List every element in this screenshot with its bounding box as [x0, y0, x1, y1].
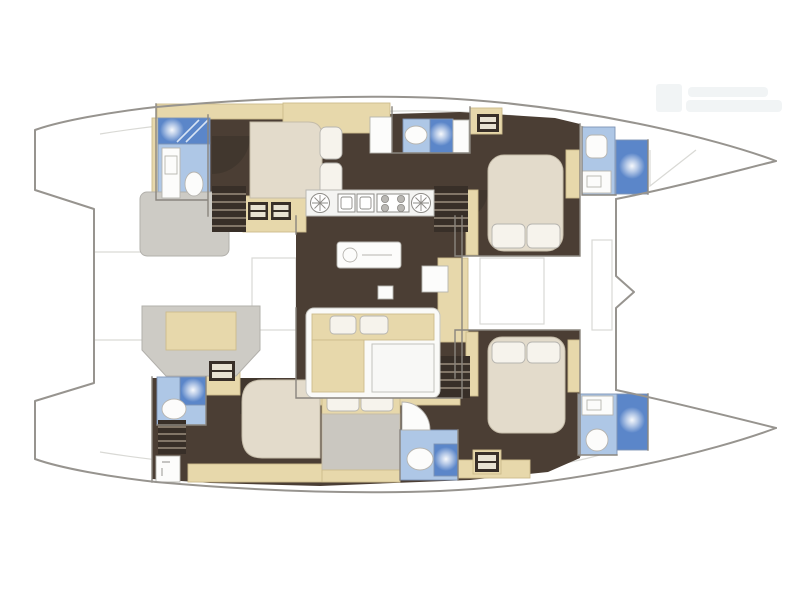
drawer-front	[478, 463, 496, 469]
pillow	[492, 342, 525, 363]
stairs-starboard-forward	[436, 356, 470, 398]
galley	[306, 190, 434, 216]
drawer-icon	[209, 361, 235, 381]
drawer-front	[274, 212, 289, 217]
drawer-icon	[248, 202, 268, 220]
drawer-front	[480, 124, 496, 129]
watermark-logo	[656, 84, 682, 112]
toilet-icon	[162, 399, 186, 419]
bed-port-aft	[250, 122, 322, 198]
drawer-front	[251, 205, 266, 210]
sofa-pillow	[360, 316, 388, 334]
drawer-front	[274, 205, 289, 210]
stairs-box	[212, 186, 246, 232]
drawer-front	[212, 364, 232, 370]
island-counter	[337, 242, 401, 268]
drawer-box	[271, 202, 291, 220]
coffee-table	[372, 344, 434, 392]
pillow	[527, 342, 560, 363]
nav-desk	[422, 266, 448, 292]
forward-cockpit-locker-outline	[592, 240, 612, 330]
burner-icon	[397, 195, 404, 202]
light-glow	[429, 122, 453, 146]
burner-icon	[397, 204, 404, 211]
washbasin-counter	[582, 171, 611, 193]
light-glow	[181, 378, 205, 402]
aft-locker	[156, 456, 180, 482]
cockpit-bench-cushion	[166, 312, 236, 350]
salon-seating	[306, 308, 440, 398]
pillow	[320, 127, 342, 159]
light-glow	[434, 447, 458, 471]
drawer-icon	[477, 114, 499, 132]
catamaran-floorplan	[0, 0, 800, 600]
drawer-box	[248, 202, 268, 220]
mid-berth-blanket	[322, 414, 400, 472]
stairs-box	[436, 356, 470, 398]
sofa-chaise-cushion	[312, 340, 364, 392]
light-glow	[619, 407, 645, 433]
toilet-icon	[185, 172, 203, 196]
drawer-front	[480, 117, 496, 122]
stairs-box	[434, 186, 468, 232]
drawer-front	[212, 372, 232, 378]
toilet-icon	[586, 429, 608, 451]
drawer-icon	[475, 452, 499, 472]
mid-berth-footboard	[322, 470, 400, 482]
watermark	[656, 84, 782, 112]
pillow	[492, 224, 525, 248]
watermark-text-line	[688, 87, 768, 97]
drawer-icon	[271, 202, 291, 220]
burner-icon	[381, 204, 388, 211]
toilet-icon	[586, 135, 607, 158]
floorplan-canvas	[0, 0, 800, 600]
forward-bulkhead	[616, 199, 634, 390]
stairs-port-aft	[212, 186, 246, 232]
pillow	[527, 224, 560, 248]
bow-locker-lines	[650, 150, 696, 186]
port-forward-wardrobe	[566, 150, 580, 198]
head-door-panel	[370, 117, 392, 153]
watermark-text-line	[686, 100, 782, 112]
sofa-pillow	[330, 316, 356, 334]
stairs-port-forward	[434, 186, 468, 232]
light-glow	[160, 118, 184, 142]
footstool	[378, 286, 393, 299]
toilet-icon	[405, 126, 427, 144]
starboard-forward-wardrobe	[568, 340, 580, 392]
drawer-box	[477, 114, 499, 132]
drawer-front	[251, 212, 266, 217]
head-cabinet	[453, 120, 469, 153]
toilet-icon	[407, 448, 433, 470]
light-glow	[619, 153, 645, 179]
burner-icon	[381, 195, 388, 202]
forward-cockpit-seat-outline	[480, 258, 544, 324]
drawer-front	[478, 455, 496, 461]
